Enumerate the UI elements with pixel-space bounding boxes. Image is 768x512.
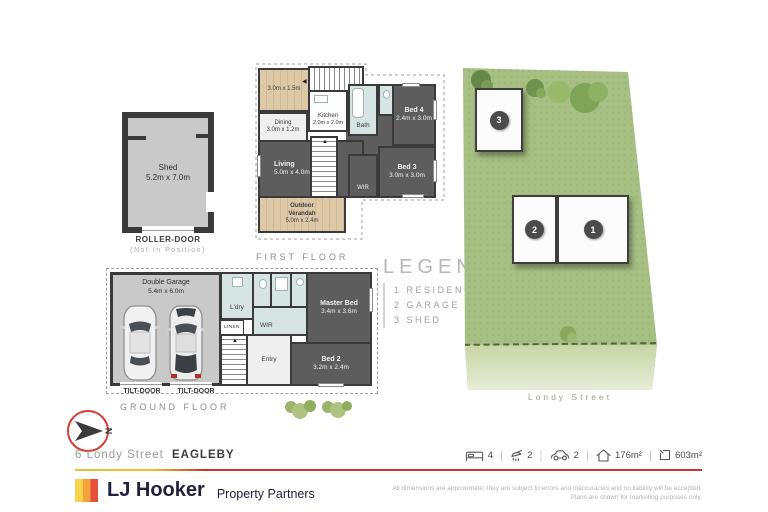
land-area-icon [659, 449, 671, 461]
master-label: Master Bed [320, 300, 358, 309]
property-address: 6 Londy Street EAGLEBY [75, 449, 235, 461]
laundry-label: L'dry [230, 304, 244, 312]
stat-separator: | [500, 448, 503, 462]
window [318, 383, 344, 387]
site-marker-2: 2 [525, 220, 544, 239]
legend-label: SHED [407, 315, 442, 325]
stat-bathrooms: 2 [510, 449, 532, 462]
wir-label-gf: WIR [260, 322, 273, 330]
shed-room: Shed 5.2m x 7.0m [122, 112, 214, 233]
stairs-gf: ▲ [220, 334, 248, 386]
stat-cars: 2 [550, 449, 579, 461]
stat-house-area-value: 176m² [615, 450, 642, 461]
tilt-door-label-right: TILT-DOOR [168, 388, 224, 395]
verandah-dims: 5.0m x 2.4m [285, 218, 318, 226]
house-area-icon [596, 449, 611, 462]
toilet [383, 90, 390, 99]
kitchen-room: Kitchen 2.0m x 2.0m [308, 90, 348, 132]
bushes [283, 398, 355, 424]
roller-door-note: (Not In Position) [102, 247, 234, 254]
stat-separator: | [649, 448, 652, 462]
car-top-view [166, 304, 206, 382]
stat-house-area: 176m² [596, 449, 642, 462]
tilt-door-gap [120, 382, 162, 387]
site-block-residence: 1 [557, 195, 629, 264]
entry-hall: Entry [246, 334, 292, 386]
bed2-dims: 3.2m x 2.4m [313, 364, 349, 372]
site-marker-3: 3 [490, 111, 509, 130]
wir-room-gf: WIR [252, 306, 308, 336]
window [433, 160, 437, 182]
stat-separator: | [539, 448, 542, 462]
stairs-mid: ▲ [310, 136, 338, 198]
toilet [259, 279, 267, 289]
bathtub [352, 88, 364, 118]
roller-door-label: ROLLER-DOOR [122, 235, 214, 244]
car-icon [550, 449, 570, 461]
compass-north-letter: N [104, 428, 114, 435]
dining-label: Dining [274, 120, 291, 128]
wir-label-ff: WIR [357, 185, 369, 193]
tilt-door-label-left: TILT-DOOR [114, 388, 170, 395]
tilt-door-gap [170, 382, 212, 387]
legend-num: 3 [394, 315, 402, 325]
bed3-room: Bed 3 3.0m x 3.0m [378, 146, 436, 198]
address-suburb: EAGLEBY [172, 449, 235, 461]
garage-dims: 5.4m x 6.0m [148, 288, 184, 296]
site-marker-1: 1 [584, 220, 603, 239]
stair-up-arrow-icon: ▲ [322, 139, 328, 147]
stat-land-area: 603m² [659, 449, 702, 461]
shed-wall-stub [196, 134, 208, 138]
dining-dims: 3.0m x 1.2m [266, 127, 299, 135]
shed-roller-gap [142, 226, 194, 234]
brand-name: LJ Hooker [107, 479, 205, 502]
stair-up-arrow-icon: ▲ [232, 338, 238, 346]
bed3-dims: 3.0m x 3.0m [389, 172, 425, 180]
shower-icon [510, 449, 523, 462]
garage-label: Double Garage [142, 279, 189, 288]
living-dims: 5.0m x 4.0m [274, 169, 310, 177]
ljhooker-logo: LJ Hooker Property Partners [75, 479, 315, 502]
bath-label: Bath [356, 122, 369, 130]
wc-room-gf [252, 272, 272, 308]
legend-num: 1 [394, 285, 402, 295]
stat-separator: | [586, 448, 589, 462]
stat-cars-value: 2 [574, 450, 579, 461]
legend-num: 2 [394, 300, 402, 310]
shed-dims: 5.2m x 7.0m [146, 173, 190, 183]
stat-bedrooms-value: 4 [488, 450, 493, 461]
ground-floor-title: GROUND FLOOR [120, 402, 230, 412]
bed3-label: Bed 3 [397, 164, 416, 173]
basin [296, 278, 304, 286]
bed2-label: Bed 2 [321, 356, 340, 365]
window [402, 83, 420, 87]
verandah-room: Outdoor Verandah 5.0m x 2.4m [258, 196, 346, 233]
dining-room: Dining 3.0m x 1.2m [258, 112, 308, 142]
master-bed-room: Master Bed 3.4m x 3.6m [306, 272, 372, 344]
kitchen-sink [314, 95, 328, 103]
car-top-view [120, 304, 160, 382]
bed4-dims: 2.4m x 3.0m [396, 115, 432, 123]
shed-label: Shed [159, 163, 178, 173]
shed-door-gap [206, 192, 216, 212]
kitchen-label: Kitchen [318, 113, 338, 121]
window [433, 100, 437, 120]
window [257, 155, 261, 177]
living-label: Living [274, 161, 295, 170]
stat-land-area-value: 603m² [675, 450, 702, 461]
legend-label: GARAGE [407, 300, 461, 310]
bed4-label: Bed 4 [404, 107, 423, 116]
first-floor-plan: 3.0m x 1.5m ◀ Kitchen 2.0m x 2.0m Bath B… [252, 60, 448, 265]
shed-wall-stub [128, 136, 146, 140]
bed4-room: Bed 4 2.4m x 3.0m [392, 84, 436, 146]
site-plan: 3 2 1 Londy Street [460, 62, 710, 414]
shower-tray [275, 277, 288, 291]
stat-bathrooms-value: 2 [527, 450, 532, 461]
stat-bedrooms: 4 [465, 449, 493, 462]
window [369, 288, 373, 312]
property-stats: 4 | 2 | 2 | 176m² | [465, 448, 702, 462]
disclaimer-line-2: Plans are shown for marketing purposes o… [372, 494, 702, 503]
deck-room: 3.0m x 1.5m [258, 68, 310, 112]
bath-room: Bath [348, 84, 378, 136]
site-block-garage: 2 [512, 195, 557, 264]
stair-direction-arrow-icon: ◀ [302, 78, 307, 85]
brand-divider-line [75, 469, 702, 471]
brand-subtitle: Property Partners [217, 487, 315, 501]
bed-icon [465, 449, 484, 462]
entry-label: Entry [261, 356, 276, 364]
deck-dims: 3.0m x 1.5m [267, 86, 300, 94]
disclaimer: All dimensions are approximate; they are… [372, 485, 702, 503]
kitchen-dims: 2.0m x 2.0m [313, 120, 343, 127]
linen-label: LINEN [224, 325, 240, 331]
wir-room-ff: WIR [348, 154, 378, 198]
master-dims: 3.4m x 3.6m [321, 308, 357, 316]
verandah-label: Outdoor Verandah [278, 203, 326, 218]
first-floor-title: FIRST FLOOR [256, 252, 348, 262]
laundry-room: L'dry [220, 272, 254, 320]
address-street: 6 Londy Street [75, 449, 164, 461]
floorplan-page: Shed 5.2m x 7.0m ROLLER-DOOR (Not In Pos… [0, 0, 768, 512]
washer [232, 277, 243, 287]
ljhooker-logo-mark-icon [75, 479, 98, 502]
bed2-room: Bed 2 3.2m x 2.4m [290, 342, 372, 386]
disclaimer-line-1: All dimensions are approximate; they are… [372, 485, 702, 494]
window [402, 194, 424, 198]
site-block-shed: 3 [475, 88, 523, 152]
street-name-label: Londy Street [510, 392, 630, 402]
